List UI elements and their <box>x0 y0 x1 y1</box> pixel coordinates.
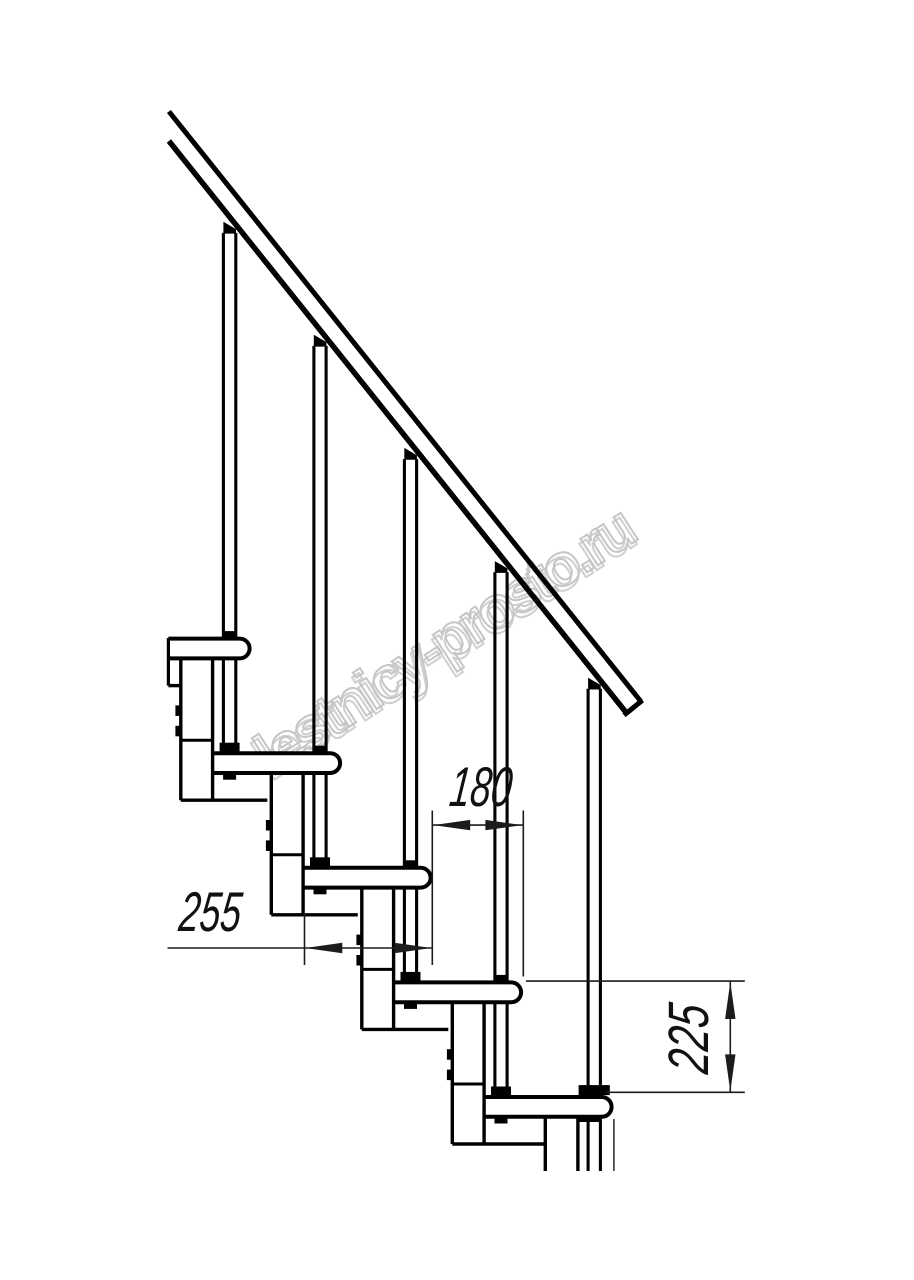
svg-text:lestnicy-prosto.ru: lestnicy-prosto.ru <box>243 494 646 788</box>
svg-text:180: 180 <box>447 757 516 819</box>
svg-text:255: 255 <box>175 882 245 944</box>
svg-text:225: 225 <box>657 1000 721 1078</box>
